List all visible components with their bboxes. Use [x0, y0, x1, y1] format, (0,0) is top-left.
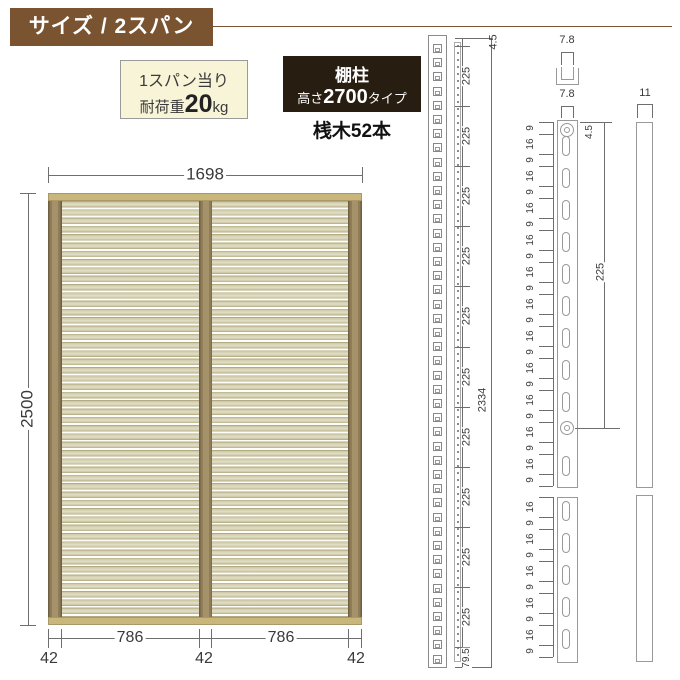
pitch-tick	[539, 454, 553, 455]
post-detail-side-lower	[636, 495, 653, 662]
dim-total-line	[491, 38, 492, 668]
pitch-label: 16	[526, 501, 536, 512]
pitch-label: 9	[526, 285, 536, 291]
post-slot-inner	[435, 318, 440, 322]
page-title-banner: サイズ / 2スパン	[10, 8, 213, 46]
pitch-tick	[539, 410, 553, 411]
pitch-tick	[539, 134, 553, 135]
dim-tick	[455, 46, 470, 47]
panel-post-center	[199, 193, 212, 625]
pitch-label: 9	[526, 648, 536, 654]
post-slot-inner	[435, 517, 440, 521]
pitch-label: 16	[526, 298, 536, 309]
post-slot-inner	[435, 375, 440, 379]
post-slot-inner	[435, 190, 440, 194]
post-slot-inner	[435, 176, 440, 180]
dim-line	[48, 638, 362, 639]
pitch-tick	[539, 154, 553, 155]
segment-dim-label: 225	[462, 607, 473, 627]
pitch-tick	[539, 517, 553, 518]
side-width-label: 11	[639, 87, 650, 99]
pitch-label: 9	[526, 477, 536, 483]
top-offset-label: 4.5	[585, 125, 595, 139]
shelf-slot	[562, 392, 570, 412]
pitch-label: 9	[526, 552, 536, 558]
channel-width-label: 7.8	[559, 34, 574, 46]
load-capacity-badge: 1スパン当り 耐荷重20kg	[120, 60, 248, 119]
pitch-label: 9	[526, 381, 536, 387]
panel-post-right	[348, 193, 362, 625]
post-height-prefix: 高さ	[297, 91, 323, 106]
pitch-label: 16	[526, 458, 536, 469]
dim-tick	[455, 587, 470, 588]
segment-dim-label: 79.5	[462, 647, 472, 668]
post-slot-inner	[435, 204, 440, 208]
pitch-tick	[539, 358, 553, 359]
pitch-label: 9	[526, 616, 536, 622]
slot-width-label: 7.8	[559, 88, 574, 100]
dim-tick	[211, 629, 212, 648]
segment-dim-label: 225	[462, 426, 473, 446]
post-slot-inner	[435, 588, 440, 592]
shelf-slot	[562, 232, 570, 252]
pitch-label: 16	[526, 426, 536, 437]
segment-dim-label: 225	[462, 126, 473, 146]
pitch-label: 9	[526, 317, 536, 323]
pitch-label: 16	[526, 266, 536, 277]
pitch-label: 16	[526, 170, 536, 181]
pitch-tick	[539, 230, 553, 231]
panel-rail-bottom	[48, 617, 362, 625]
post-slot-inner	[435, 76, 440, 80]
pitch-tick	[539, 326, 553, 327]
shelf-slot	[562, 456, 570, 476]
post-slot-inner	[435, 275, 440, 279]
page-title: サイズ / 2スパン	[29, 15, 195, 38]
shelf-slot	[562, 533, 570, 553]
pitch-label: 16	[526, 362, 536, 373]
pitch-tick	[539, 390, 553, 391]
post-slot-inner	[435, 360, 440, 364]
post-slot-inner	[435, 119, 440, 123]
post-slot-inner	[435, 247, 440, 251]
dim-tick	[455, 527, 470, 528]
pitch-tick	[539, 613, 553, 614]
post-slot-inner	[435, 573, 440, 577]
pitch-tick	[539, 497, 553, 498]
load-value: 20	[185, 90, 213, 118]
post-height-value: 2700	[323, 86, 368, 108]
total-height-label: 2334	[478, 387, 489, 413]
dim-tick	[362, 167, 363, 183]
pitch-tick	[539, 186, 553, 187]
pitch-tick	[539, 198, 553, 199]
pitch-tick	[539, 561, 553, 562]
dim-tick	[61, 629, 62, 648]
dim-tick	[48, 629, 49, 648]
bracket	[561, 106, 562, 118]
pitch-tick	[539, 657, 553, 658]
dim-tick	[455, 407, 470, 408]
dim-tick	[199, 629, 200, 648]
dim-tick	[455, 286, 470, 287]
span-width-label: 786	[115, 629, 146, 647]
hole-leader-line	[575, 428, 620, 429]
pitch-tick	[539, 645, 553, 646]
dim-tick	[20, 625, 36, 626]
pitch-tick	[539, 166, 553, 167]
dim-tick	[361, 629, 362, 648]
post-slot-inner	[435, 616, 440, 620]
pitch-tick	[539, 122, 553, 123]
post-slot-inner	[435, 531, 440, 535]
bracket	[637, 104, 638, 118]
pitch-tick	[539, 474, 553, 475]
dim-tick	[580, 122, 612, 123]
pitch-tick	[539, 314, 553, 315]
pitch-tick	[539, 346, 553, 347]
post-slot-inner	[435, 389, 440, 393]
shelf-slot	[562, 501, 570, 521]
post-slot-inner	[435, 261, 440, 265]
post-slot-inner	[435, 403, 440, 407]
dim-tick	[455, 38, 470, 39]
post-slot-inner	[435, 147, 440, 151]
post-slot-inner	[435, 91, 440, 95]
post-slot-inner	[435, 545, 440, 549]
pitch-tick	[539, 529, 553, 530]
post-slot-inner	[435, 602, 440, 606]
pitch-label: 16	[526, 629, 536, 640]
panel-post-left	[48, 193, 62, 625]
dim-tick	[455, 106, 470, 107]
dim-tick	[348, 629, 349, 648]
segment-dim-label: 4.5	[489, 34, 500, 49]
post-badge-title: 棚柱	[283, 61, 421, 86]
load-badge-line1: 1スパン当り	[121, 67, 247, 91]
pitch-label: 16	[526, 234, 536, 245]
span-width-label: 786	[266, 629, 297, 647]
segment-dim-label: 225	[462, 366, 473, 386]
pitch-label: 9	[526, 584, 536, 590]
dim-tick	[455, 166, 470, 167]
bracket	[637, 104, 653, 105]
post-slot-inner	[435, 133, 440, 137]
segment-dim-label: 225	[462, 547, 473, 567]
product-size-diagram: サイズ / 2スパン 1スパン当り 耐荷重20kg 棚柱 高さ2700タイプ 桟…	[0, 0, 680, 680]
side-view-slot-marks	[457, 45, 459, 659]
post-slot-inner	[435, 332, 440, 336]
load-unit: kg	[212, 99, 228, 116]
pitch-label: 9	[526, 413, 536, 419]
load-badge-line2: 耐荷重20kg	[121, 91, 247, 121]
shelf-slot	[562, 629, 570, 649]
bracket	[573, 106, 574, 118]
pitch-tick	[539, 625, 553, 626]
shelf-slot	[562, 168, 570, 188]
segment-dim-label: 225	[462, 487, 473, 507]
header-rule	[213, 26, 672, 27]
pitch-label: 9	[526, 520, 536, 526]
panel-width-label: 1698	[184, 166, 226, 185]
post-slot-inner	[435, 48, 440, 52]
segment-dim-label: 225	[462, 306, 473, 326]
pitch-label: 16	[526, 394, 536, 405]
pitch-tick	[539, 294, 553, 295]
pitch-label: 16	[526, 597, 536, 608]
shelf-slot	[562, 296, 570, 316]
pitch-tick	[539, 581, 553, 582]
post-badge-line2: 高さ2700タイプ	[283, 86, 421, 110]
pitch-tick	[539, 262, 553, 263]
mount-hole-top-inner	[564, 127, 570, 133]
pitch-tick	[539, 218, 553, 219]
shelf-slot	[562, 200, 570, 220]
post-type-badge: 棚柱 高さ2700タイプ	[283, 56, 421, 112]
pitch-label: 16	[526, 202, 536, 213]
load-prefix: 耐荷重	[140, 99, 185, 116]
post-height-suffix: タイプ	[368, 91, 407, 106]
pitch-tick	[539, 282, 553, 283]
post-slot-inner	[435, 659, 440, 663]
post-width-label: 42	[40, 650, 58, 668]
post-slot-inner	[435, 474, 440, 478]
post-detail-side-upper	[636, 122, 653, 488]
shelf-slot	[562, 565, 570, 585]
bracket	[573, 52, 574, 65]
post-slot-inner	[435, 346, 440, 350]
pitch-tick	[539, 442, 553, 443]
post-slot-inner	[435, 62, 440, 66]
post-slot-inner	[435, 488, 440, 492]
segment-dim-label: 225	[462, 186, 473, 206]
post-slot-inner	[435, 105, 440, 109]
post-slot-inner	[435, 460, 440, 464]
post-slot-inner	[435, 304, 440, 308]
post-slot-inner	[435, 630, 440, 634]
pitch-tick	[539, 250, 553, 251]
dim-tick	[455, 226, 470, 227]
post-slot-inner	[435, 431, 440, 435]
segment-dim-label: 225	[462, 246, 473, 266]
shelf-slot	[562, 597, 570, 617]
shelf-slot	[562, 264, 570, 284]
pitch-label: 9	[526, 189, 536, 195]
shelf-slot	[562, 360, 570, 380]
pitch-line	[553, 122, 554, 486]
shelf-slot	[562, 328, 570, 348]
pitch-label: 16	[526, 138, 536, 149]
segment-dim-label: 225	[462, 66, 473, 86]
post-slot-inner	[435, 218, 440, 222]
pitch-label: 9	[526, 253, 536, 259]
pitch-label: 9	[526, 221, 536, 227]
crosspiece-count-note: 桟木52本	[283, 116, 421, 143]
pitch-label: 9	[526, 349, 536, 355]
post-cross-section	[556, 68, 579, 85]
post-width-label: 42	[195, 650, 213, 668]
mount-hole-mid-inner	[564, 425, 570, 431]
pitch-tick	[539, 549, 553, 550]
pitch-line	[553, 497, 554, 657]
post-slot-inner	[435, 162, 440, 166]
bracket	[561, 52, 562, 65]
post-slot-inner	[435, 559, 440, 563]
pitch-tick	[539, 422, 553, 423]
pitch-tick	[539, 486, 553, 487]
hole-pitch-label: 225	[596, 262, 607, 282]
post-slot-inner	[435, 502, 440, 506]
pitch-label: 16	[526, 533, 536, 544]
post-slot-inner	[435, 446, 440, 450]
post-slot-inner	[435, 417, 440, 421]
shelf-slot	[562, 136, 570, 156]
panel-height-label: 2500	[19, 388, 38, 430]
post-slot-inner	[435, 644, 440, 648]
cross-section-channel	[561, 67, 574, 80]
pitch-label: 9	[526, 125, 536, 131]
post-slot-inner	[435, 289, 440, 293]
pitch-label: 9	[526, 445, 536, 451]
pitch-tick	[539, 593, 553, 594]
pitch-tick	[539, 378, 553, 379]
pitch-label: 16	[526, 330, 536, 341]
panel-rail-top	[48, 193, 362, 201]
post-slot-inner	[435, 233, 440, 237]
dim-tick	[455, 467, 470, 468]
bracket	[652, 104, 653, 118]
post-width-label: 42	[347, 650, 365, 668]
dim-tick	[455, 347, 470, 348]
pitch-label: 9	[526, 157, 536, 163]
pitch-label: 16	[526, 565, 536, 576]
